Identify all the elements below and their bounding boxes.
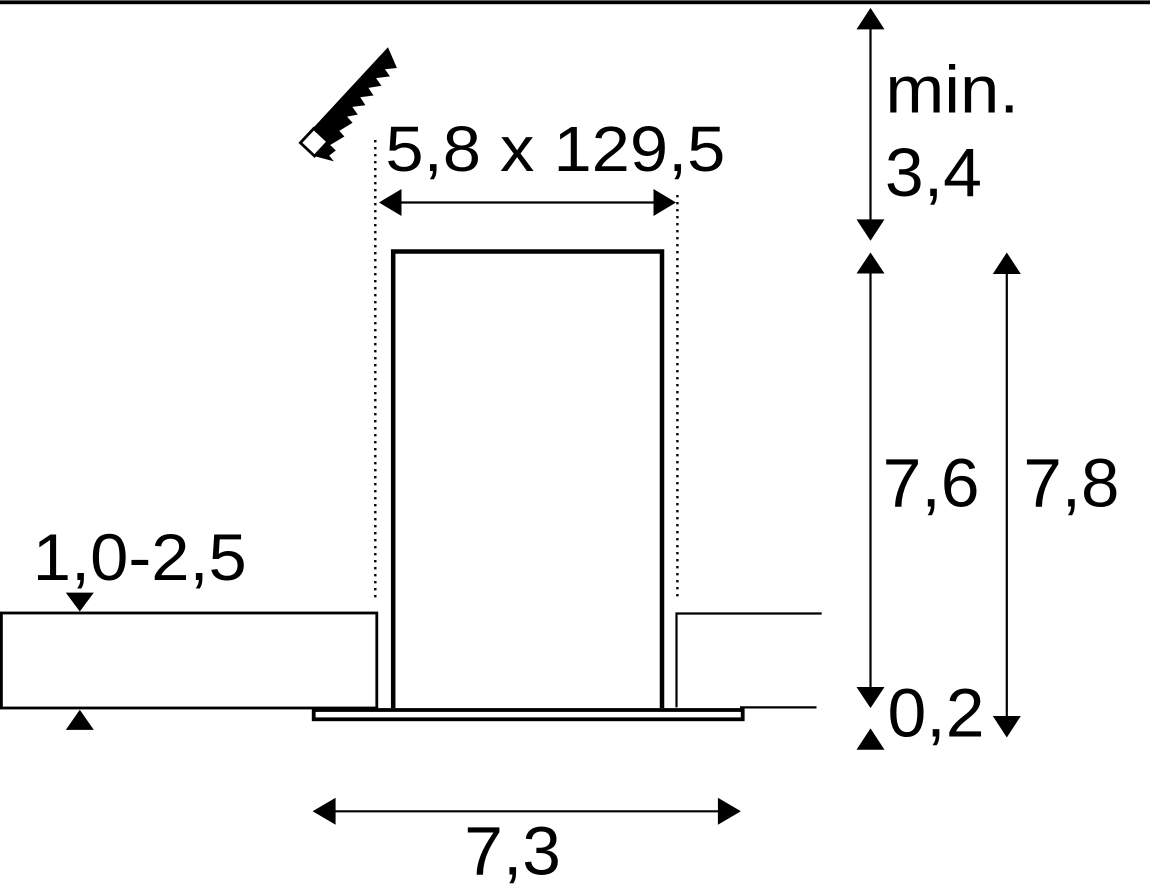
svg-text:7,8: 7,8 <box>1023 445 1119 522</box>
svg-text:3,4: 3,4 <box>885 134 982 211</box>
svg-text:1,0-2,5: 1,0-2,5 <box>33 520 247 594</box>
svg-text:7,3: 7,3 <box>464 813 561 885</box>
svg-text:7,6: 7,6 <box>883 445 980 522</box>
svg-text:0,2: 0,2 <box>888 675 985 752</box>
svg-text:min.: min. <box>885 52 1019 127</box>
svg-text:5,8 x 129,5: 5,8 x 129,5 <box>385 113 725 185</box>
